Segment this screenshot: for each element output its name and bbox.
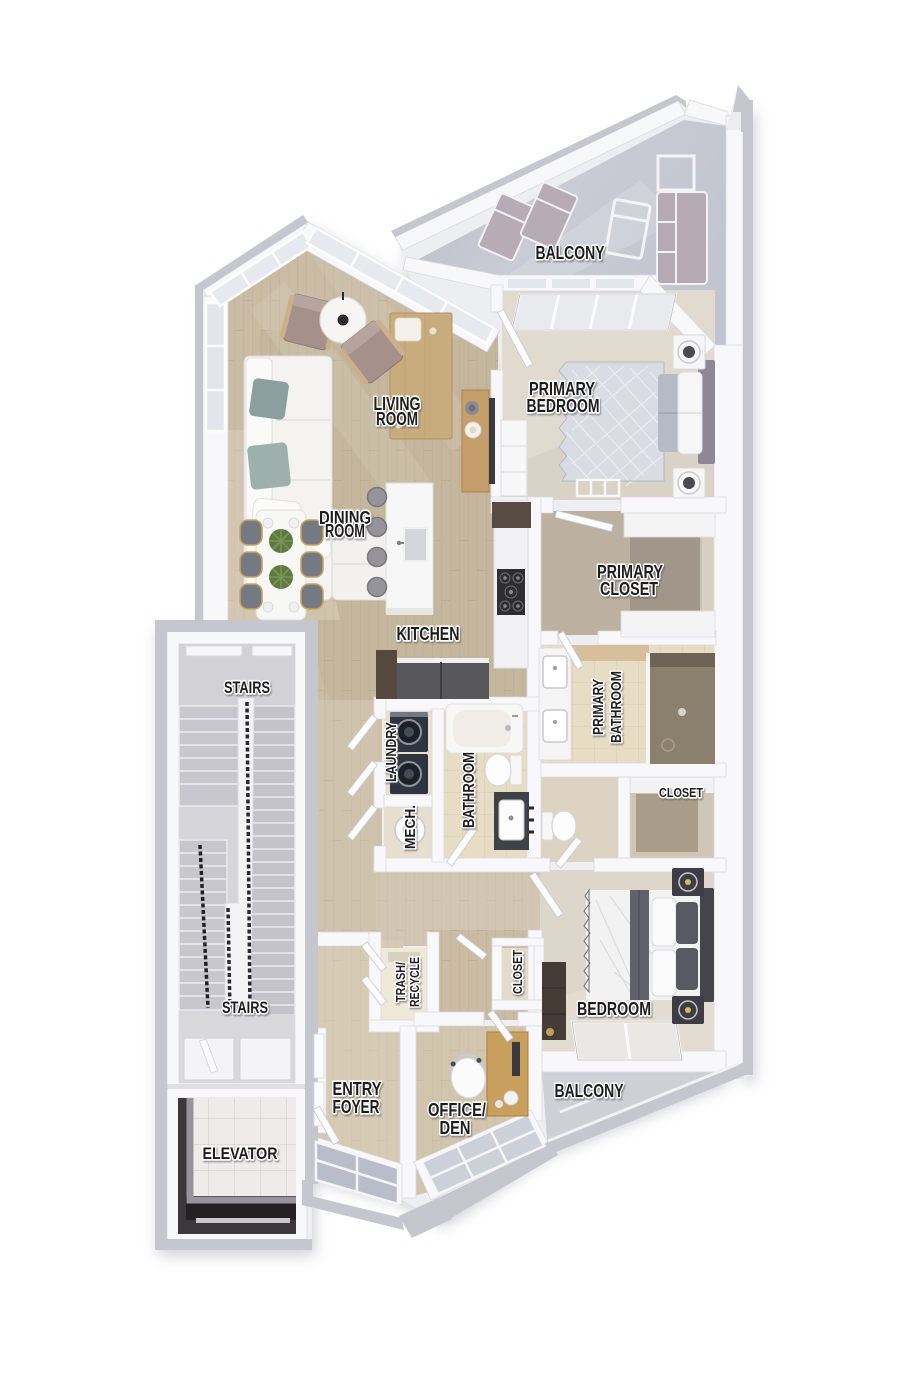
- svg-text:CLOSET: CLOSET: [659, 785, 703, 800]
- svg-text:MECH.: MECH.: [402, 805, 419, 849]
- svg-text:LAUNDRY: LAUNDRY: [383, 722, 400, 782]
- svg-text:STAIRS: STAIRS: [224, 678, 270, 697]
- svg-text:KITCHEN: KITCHEN: [397, 624, 460, 644]
- svg-text:ROOM: ROOM: [376, 409, 418, 429]
- svg-text:BEDROOM: BEDROOM: [577, 999, 651, 1019]
- svg-text:ROOM: ROOM: [325, 521, 365, 541]
- svg-text:STAIRS: STAIRS: [222, 998, 268, 1017]
- svg-text:BALCONY: BALCONY: [555, 1081, 624, 1101]
- svg-text:BALCONY: BALCONY: [536, 243, 605, 263]
- svg-text:BATHROOM: BATHROOM: [461, 752, 478, 828]
- svg-text:TRASH/: TRASH/: [394, 962, 408, 1002]
- svg-text:OFFICE/: OFFICE/: [428, 1100, 486, 1120]
- svg-text:RECYCLE: RECYCLE: [408, 957, 422, 1007]
- svg-text:ENTRY: ENTRY: [333, 1079, 382, 1099]
- svg-text:DEN: DEN: [440, 1118, 471, 1138]
- svg-text:FOYER: FOYER: [333, 1097, 380, 1117]
- svg-text:BATHROOM: BATHROOM: [608, 671, 625, 743]
- svg-text:CLOSET: CLOSET: [600, 579, 658, 599]
- svg-text:PRIMARY: PRIMARY: [590, 679, 607, 735]
- svg-text:ELEVATOR: ELEVATOR: [203, 1144, 278, 1163]
- svg-text:BEDROOM: BEDROOM: [527, 396, 600, 416]
- svg-text:CLOSET: CLOSET: [510, 950, 525, 994]
